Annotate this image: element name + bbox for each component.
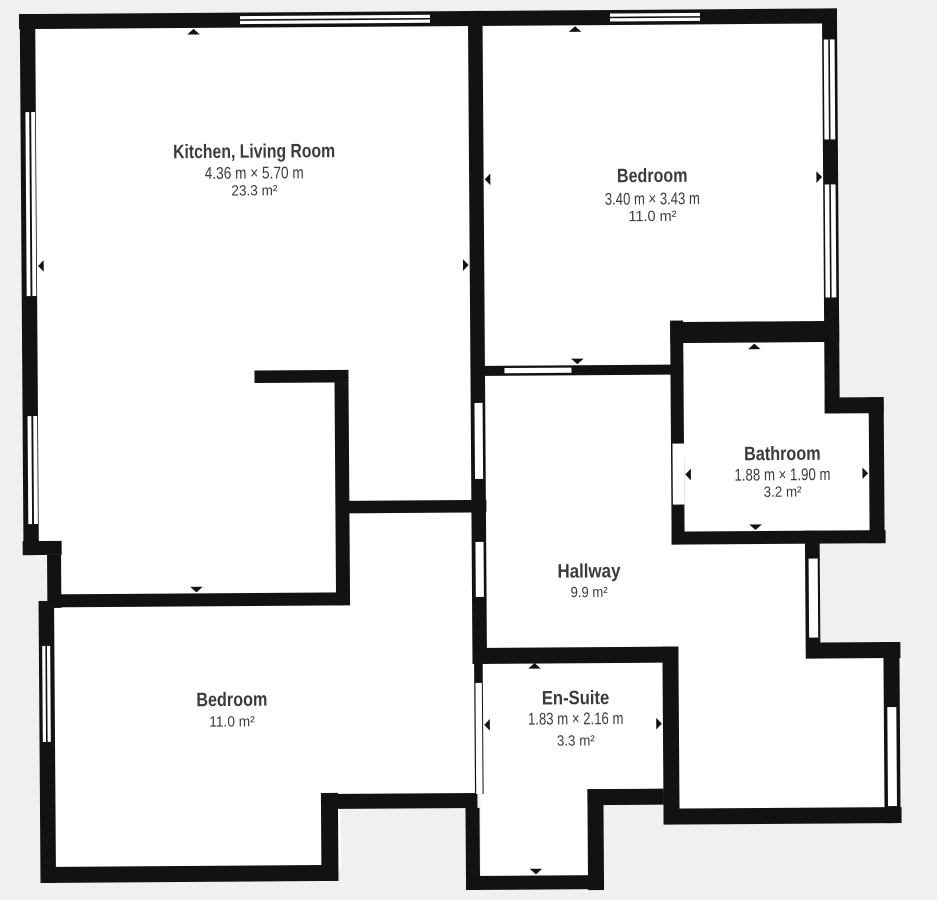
- svg-text:23.3 m²: 23.3 m²: [231, 183, 277, 199]
- svg-text:En-Suite: En-Suite: [542, 687, 610, 709]
- svg-text:Bedroom: Bedroom: [196, 689, 267, 711]
- svg-text:1.88 m × 1.90 m: 1.88 m × 1.90 m: [734, 465, 830, 485]
- svg-text:Hallway: Hallway: [557, 560, 620, 582]
- svg-text:4.36 m × 5.70 m: 4.36 m × 5.70 m: [205, 163, 304, 183]
- svg-text:3.3 m²: 3.3 m²: [557, 733, 595, 749]
- svg-text:Bedroom: Bedroom: [617, 165, 688, 187]
- svg-text:3.40 m × 3.43 m: 3.40 m × 3.43 m: [605, 189, 700, 209]
- svg-text:3.2 m²: 3.2 m²: [764, 485, 802, 501]
- svg-text:Bathroom: Bathroom: [744, 443, 821, 466]
- svg-text:11.0 m²: 11.0 m²: [209, 714, 255, 730]
- svg-text:Kitchen, Living Room: Kitchen, Living Room: [173, 140, 335, 163]
- svg-text:11.0 m²: 11.0 m²: [628, 209, 676, 225]
- svg-text:1.83 m × 2.16 m: 1.83 m × 2.16 m: [528, 709, 624, 729]
- svg-text:9.9 m²: 9.9 m²: [571, 585, 608, 601]
